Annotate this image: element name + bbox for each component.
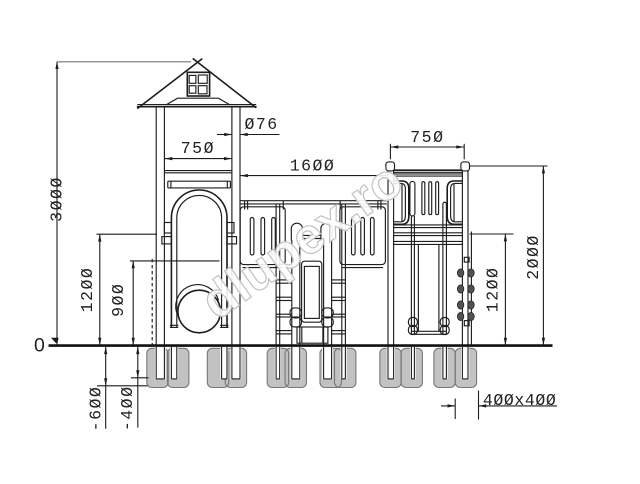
svg-text:75Ø: 75Ø: [181, 139, 215, 158]
svg-text:Ø76: Ø76: [244, 115, 278, 134]
svg-text:2ØØØ: 2ØØØ: [524, 234, 543, 280]
svg-text:9ØØ: 9ØØ: [109, 283, 128, 317]
svg-text:12ØØ: 12ØØ: [78, 267, 97, 313]
svg-text:16ØØ: 16ØØ: [290, 156, 336, 175]
svg-text:4ØØx4ØØ: 4ØØx4ØØ: [483, 391, 557, 410]
svg-text:-6ØØ: -6ØØ: [86, 386, 105, 432]
svg-text:12ØØ: 12ØØ: [484, 267, 503, 313]
svg-text:0: 0: [34, 335, 45, 357]
svg-text:75Ø: 75Ø: [410, 128, 444, 147]
svg-text:-4ØØ: -4ØØ: [118, 385, 137, 431]
svg-text:3ØØØ: 3ØØØ: [47, 176, 66, 222]
